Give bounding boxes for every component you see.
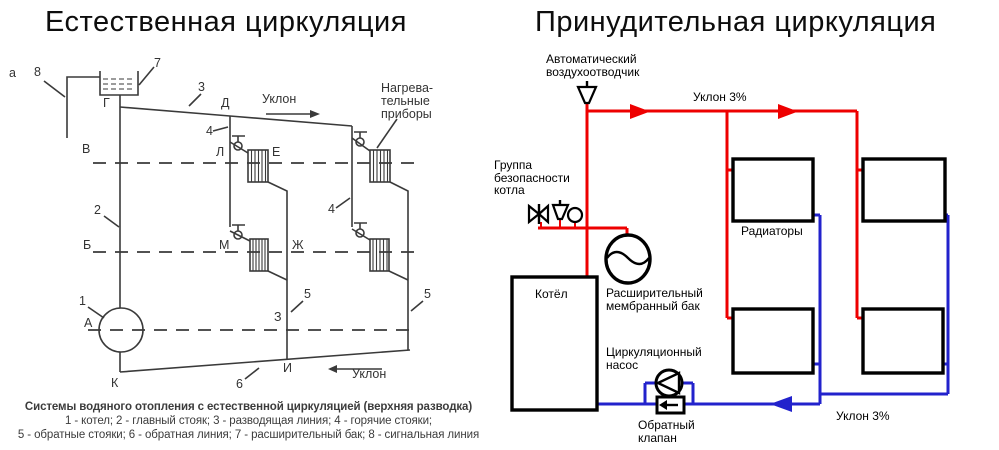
safety-group-pipe: [538, 228, 627, 237]
label-5a-leader: [291, 301, 303, 312]
label-2: 2: [94, 204, 101, 217]
return-riser-1: [268, 182, 287, 359]
right-title: Принудительная циркуляция: [535, 6, 936, 39]
label-3: 3: [198, 81, 205, 94]
label-5b: 5: [424, 288, 431, 301]
left-title: Естественная циркуляция: [45, 6, 407, 39]
valve-icon: [230, 136, 248, 153]
point-label-k: К: [111, 377, 118, 390]
label-5b-leader: [411, 301, 423, 311]
radiator-icon: [370, 150, 390, 182]
radiator-box: [863, 159, 945, 221]
air-vent-label: Автоматический воздухоотводчик: [546, 53, 639, 79]
label-4a-leader: [213, 127, 228, 131]
radiator-box: [733, 159, 813, 221]
safety-vent-icon: [553, 200, 568, 219]
air-vent-icon: [578, 81, 596, 103]
expansion-tank-icon: [100, 67, 154, 95]
label-1: 1: [79, 295, 86, 308]
point-label-i: И: [283, 362, 292, 375]
caption-legend-line: 5 - обратные стояки; 6 - обратная линия;…: [0, 428, 497, 442]
label-7-leader: [139, 67, 154, 85]
valve-icon: [230, 225, 250, 241]
point-label-b: Б: [83, 239, 91, 252]
label-8-leader: [44, 81, 65, 97]
check-valve-icon: [657, 397, 684, 413]
point-label-l: Л: [216, 146, 224, 159]
label-2-leader: [104, 216, 119, 227]
radiator-box: [733, 309, 813, 373]
slope-arrow-right-icon: [266, 110, 320, 118]
signal-line: [67, 77, 100, 138]
label-5a: 5: [304, 288, 311, 301]
label-6: 6: [236, 378, 243, 391]
radiator-return-link: [268, 271, 287, 280]
membrane-tank-label: Расширительный мембранный бак: [606, 287, 703, 313]
point-label-z: З: [274, 311, 282, 324]
label-4b: 4: [328, 203, 335, 216]
radiator-icon: [370, 239, 389, 271]
figure-label: а: [9, 67, 16, 80]
point-label-v: В: [82, 143, 90, 156]
heaters-label: Нагрева- тельные приборы: [381, 82, 433, 121]
return-riser-2: [390, 182, 408, 350]
point-label-a: А: [84, 317, 92, 330]
radiator-boxes: [733, 159, 945, 373]
safety-valve-icon: [529, 204, 548, 224]
flow-arrow-right-icon: [630, 104, 650, 119]
heaters-label-leader: [377, 119, 397, 148]
valve-icon: [352, 132, 370, 151]
forced-circulation-schematic: [512, 81, 948, 413]
point-label-e: Е: [272, 146, 280, 159]
radiator-icon: [250, 239, 268, 271]
membrane-tank-icon: [606, 235, 650, 283]
point-label-g: Г: [103, 97, 110, 110]
flow-arrow-left-icon: [770, 396, 792, 412]
pressure-gauge-icon: [568, 208, 582, 222]
natural-circulation-schematic: [44, 67, 423, 379]
label-8: 8: [34, 66, 41, 79]
radiators-label: Радиаторы: [741, 225, 803, 238]
safety-group-label: Группа безопасности котла: [494, 159, 570, 197]
slope-label-top: Уклон: [262, 93, 296, 106]
slope-label-bottom: Уклон: [352, 368, 386, 381]
radiator-icon: [248, 150, 268, 182]
point-label-zh: Ж: [292, 239, 304, 252]
point-label-m: М: [219, 239, 229, 252]
pump-label: Циркуляционный насос: [606, 346, 702, 372]
label-4b-leader: [336, 198, 350, 208]
label-7: 7: [154, 57, 161, 70]
label-3-leader: [189, 94, 201, 106]
slope-label-supply: Уклон 3%: [693, 91, 747, 104]
two-circulation-diagrams: Естественная циркуляция Принудительная ц…: [0, 0, 999, 450]
check-valve-label: Обратный клапан: [638, 419, 695, 445]
radiator-box: [863, 309, 943, 373]
boiler-label: Котёл: [535, 288, 568, 301]
radiator-return-link: [389, 271, 408, 280]
valve-icon: [352, 223, 370, 240]
distribution-line: [120, 107, 352, 126]
diagram-linework: [0, 0, 999, 450]
figure-caption: Системы водяного отопления с естественно…: [0, 400, 497, 442]
slope-label-return: Уклон 3%: [836, 410, 890, 423]
circulation-pump-icon: [656, 370, 682, 396]
flow-arrow-right-icon: [778, 104, 798, 119]
label-4a: 4: [206, 125, 213, 138]
caption-legend-line: 1 - котел; 2 - главный стояк; 3 - развод…: [0, 414, 497, 428]
point-label-d: Д: [221, 97, 229, 110]
label-6-leader: [245, 368, 259, 379]
caption-title: Системы водяного отопления с естественно…: [0, 400, 497, 414]
